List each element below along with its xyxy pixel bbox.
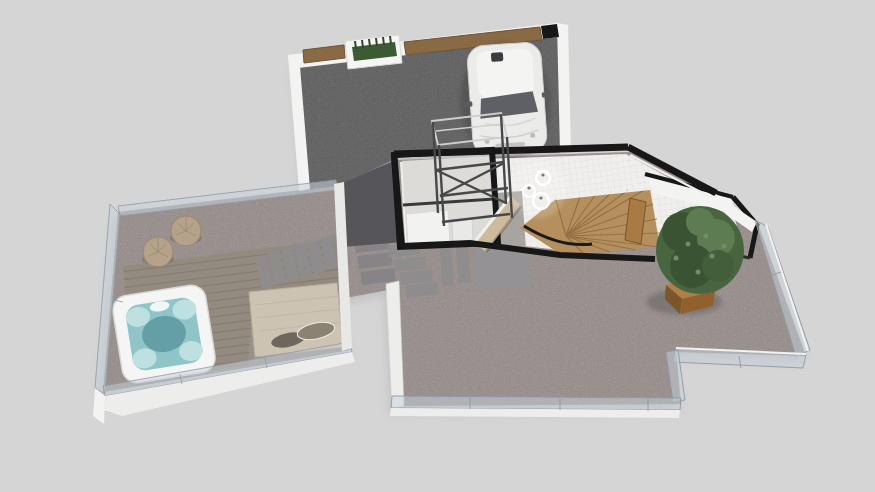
- car-mirror-left: [463, 101, 472, 107]
- railing-bottom: [391, 396, 681, 410]
- car-roof: [476, 48, 535, 98]
- pendant-cable-3: [539, 196, 542, 199]
- pendant-lights[interactable]: [510, 162, 566, 218]
- planter-box[interactable]: [345, 35, 402, 69]
- floorplan-render: [0, 0, 875, 492]
- pendant-cable-1: [541, 173, 544, 176]
- wall-cap: [541, 24, 559, 39]
- scene-canvas: [0, 0, 875, 492]
- pendant-cable-2: [527, 186, 530, 189]
- tree-foliage: [656, 206, 744, 294]
- car-sunroof: [491, 52, 504, 62]
- car-mirror-right: [542, 92, 551, 98]
